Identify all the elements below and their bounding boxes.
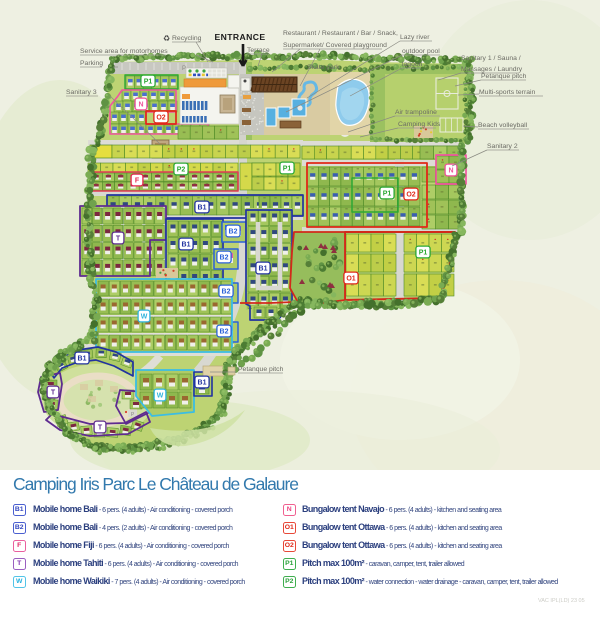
svg-text:Petanque pitch: Petanque pitch xyxy=(481,73,527,80)
svg-text:Beach volleyball: Beach volleyball xyxy=(478,122,528,129)
svg-text:♻: ♻ xyxy=(163,34,170,43)
svg-text:T: T xyxy=(116,236,121,243)
svg-text:Lazy river: Lazy river xyxy=(400,34,430,41)
svg-text:B1: B1 xyxy=(78,356,87,363)
svg-text:B2: B2 xyxy=(222,289,231,296)
svg-text:Parking: Parking xyxy=(80,60,103,67)
svg-text:T: T xyxy=(98,425,103,432)
svg-text:Supermarket/ Covered playgroun: Supermarket/ Covered playground xyxy=(283,42,387,49)
svg-text:Multi-sports terrain: Multi-sports terrain xyxy=(479,89,535,96)
svg-text:B2: B2 xyxy=(229,229,238,236)
svg-text:B2: B2 xyxy=(220,255,229,262)
svg-text:Restaurant / Restaurant / Bar: Restaurant / Restaurant / Bar / Snack, xyxy=(283,30,398,37)
svg-text:Sanitary 2: Sanitary 2 xyxy=(487,143,518,150)
svg-text:P1: P1 xyxy=(383,191,392,198)
svg-text:P: P xyxy=(182,66,186,72)
svg-text:Petanque pitch: Petanque pitch xyxy=(238,366,284,373)
svg-text:lagoon: lagoon xyxy=(402,61,423,68)
svg-text:P2: P2 xyxy=(177,167,186,174)
svg-text:P1: P1 xyxy=(144,79,153,86)
svg-text:Camping Kids: Camping Kids xyxy=(398,121,441,128)
svg-text:Terrace: Terrace xyxy=(247,47,270,54)
svg-text:B1: B1 xyxy=(198,205,207,212)
svg-text:Massages / Laundry: Massages / Laundry xyxy=(461,66,523,73)
svg-text:ENTRANCE: ENTRANCE xyxy=(215,32,266,42)
svg-text:Air trampoline: Air trampoline xyxy=(395,109,437,116)
svg-text:P1: P1 xyxy=(283,166,292,173)
svg-text:Sanitary 1 / Sauna /: Sanitary 1 / Sauna / xyxy=(461,55,521,62)
svg-text:F: F xyxy=(135,178,140,185)
svg-text:B1: B1 xyxy=(198,380,207,387)
svg-text:B1: B1 xyxy=(259,266,268,273)
svg-text:N: N xyxy=(138,102,143,109)
svg-text:W: W xyxy=(157,393,164,400)
svg-text:T: T xyxy=(51,390,56,397)
svg-text:O1: O1 xyxy=(346,276,355,283)
svg-text:B1: B1 xyxy=(182,242,191,249)
svg-text:outdoor pool: outdoor pool xyxy=(402,48,440,55)
svg-text:W: W xyxy=(141,314,148,321)
svg-text:P1: P1 xyxy=(419,250,428,257)
svg-text:Recycling: Recycling xyxy=(172,35,202,42)
svg-text:O2: O2 xyxy=(406,192,415,199)
svg-text:Sanitary 3: Sanitary 3 xyxy=(66,89,97,96)
svg-text:B2: B2 xyxy=(220,329,229,336)
svg-text:O2: O2 xyxy=(156,115,165,122)
svg-text:N: N xyxy=(448,168,453,175)
svg-text:Service area for motorhomes: Service area for motorhomes xyxy=(80,48,168,55)
svg-text:Skate park: Skate park xyxy=(307,64,340,71)
